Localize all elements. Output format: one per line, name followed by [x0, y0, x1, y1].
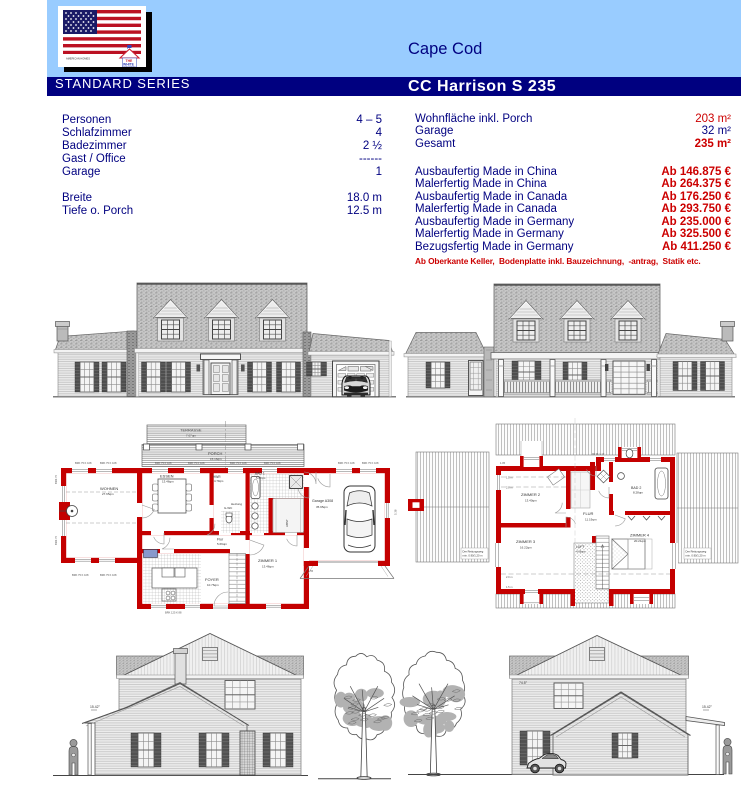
svg-text:BRK 75 K 108: BRK 75 K 108: [338, 461, 355, 465]
svg-text:BRK 75 K 108: BRK 75 K 108: [72, 573, 89, 577]
svg-text:BRK 75 K 108: BRK 75 K 108: [75, 461, 92, 465]
svg-text:1.5 m: 1.5 m: [506, 585, 513, 589]
svg-text:11.19qm: 11.19qm: [585, 518, 597, 522]
svg-text:BAD 2: BAD 2: [631, 486, 641, 490]
svg-text:1.55: 1.55: [308, 569, 314, 573]
svg-text:BRK 75: BRK 75: [54, 536, 58, 545]
svg-text:35.95qm: 35.95qm: [316, 505, 328, 509]
svg-text:20.21qm: 20.21qm: [634, 539, 646, 543]
svg-text:5.38: 5.38: [394, 509, 398, 515]
svg-text:16.22qm: 16.22qm: [520, 546, 532, 550]
svg-text:10.76qm: 10.76qm: [207, 583, 219, 587]
svg-text:LUFT: LUFT: [576, 545, 584, 549]
svg-text:BRK 75 K 108: BRK 75 K 108: [188, 461, 205, 465]
svg-text:Flur: Flur: [217, 538, 224, 542]
svg-text:G-WC: G-WC: [224, 506, 233, 510]
svg-text:min. 0.90/1.20 m: min. 0.90/1.20 m: [463, 554, 484, 558]
svg-text:1.05: 1.05: [500, 461, 506, 465]
svg-text:ZIMMER 3: ZIMMER 3: [516, 539, 536, 544]
svg-text:13.46qm: 13.46qm: [262, 565, 274, 569]
svg-text:min. 0.90/1.20 m: min. 0.90/1.20 m: [686, 554, 707, 558]
svg-text:ZIMMER 2: ZIMMER 2: [521, 492, 541, 497]
svg-text:74.5°: 74.5°: [519, 681, 528, 685]
svg-text:15.16qm: 15.16qm: [210, 457, 222, 461]
svg-text:Der Rettungsweg: Der Rettungsweg: [686, 550, 707, 554]
svg-text:5.67qm: 5.67qm: [256, 476, 266, 480]
svg-text:BRK 75 K 108: BRK 75 K 108: [230, 461, 247, 465]
svg-text:Der Rettungsweg: Der Rettungsweg: [463, 550, 484, 554]
svg-text:Garage A308: Garage A308: [312, 499, 333, 503]
svg-text:TERRASSE: TERRASSE: [180, 428, 202, 433]
svg-text:96 36 1.17: 96 36 1.17: [592, 452, 605, 456]
svg-text:BRK 75 K 108: BRK 75 K 108: [100, 461, 117, 465]
svg-text:BRK 75 K 108: BRK 75 K 108: [155, 461, 172, 465]
svg-text:BRK 125 K 88: BRK 125 K 88: [165, 611, 182, 615]
svg-text:1.5 m: 1.5 m: [506, 476, 513, 480]
svg-text:WOHNEN: WOHNEN: [100, 486, 118, 491]
svg-text:4.06qm: 4.06qm: [576, 550, 586, 554]
svg-text:13.46qm: 13.46qm: [162, 480, 174, 484]
svg-text:7.07qm: 7.07qm: [186, 434, 197, 438]
svg-text:BRK 75 K 108: BRK 75 K 108: [264, 461, 281, 465]
svg-text:5.69qm: 5.69qm: [217, 542, 228, 546]
svg-text:BRK 75: BRK 75: [54, 475, 58, 484]
svg-text:ABST: ABST: [285, 519, 289, 527]
svg-text:BRK 75 K 108: BRK 75 K 108: [362, 461, 379, 465]
svg-text:ZIMMER 1: ZIMMER 1: [258, 558, 278, 563]
svg-text:ESSEN: ESSEN: [160, 474, 174, 479]
svg-text:BRK 75 K 108: BRK 75 K 108: [100, 573, 117, 577]
svg-text:AMERICAN HOMES: AMERICAN HOMES: [66, 57, 90, 61]
svg-text:FLUR: FLUR: [583, 511, 594, 516]
svg-text:2.0 m: 2.0 m: [506, 486, 513, 490]
svg-text:HOUSE: HOUSE: [123, 66, 136, 67]
svg-text:Heizung: Heizung: [231, 502, 242, 506]
svg-text:13.40qm: 13.40qm: [525, 499, 537, 503]
svg-text:2.0 m: 2.0 m: [506, 575, 513, 579]
svg-text:BAD 1: BAD 1: [255, 472, 265, 476]
svg-text:FOYER: FOYER: [205, 577, 219, 582]
svg-text:ZIMMER 4: ZIMMER 4: [630, 533, 650, 538]
svg-text:15.42°: 15.42°: [90, 705, 100, 709]
svg-text:27.65qm: 27.65qm: [102, 492, 114, 496]
svg-text:8.28qm: 8.28qm: [633, 491, 644, 495]
svg-text:15.42°: 15.42°: [702, 705, 712, 709]
svg-text:PORCH: PORCH: [208, 451, 223, 456]
svg-text:4.79qm: 4.79qm: [214, 479, 224, 483]
